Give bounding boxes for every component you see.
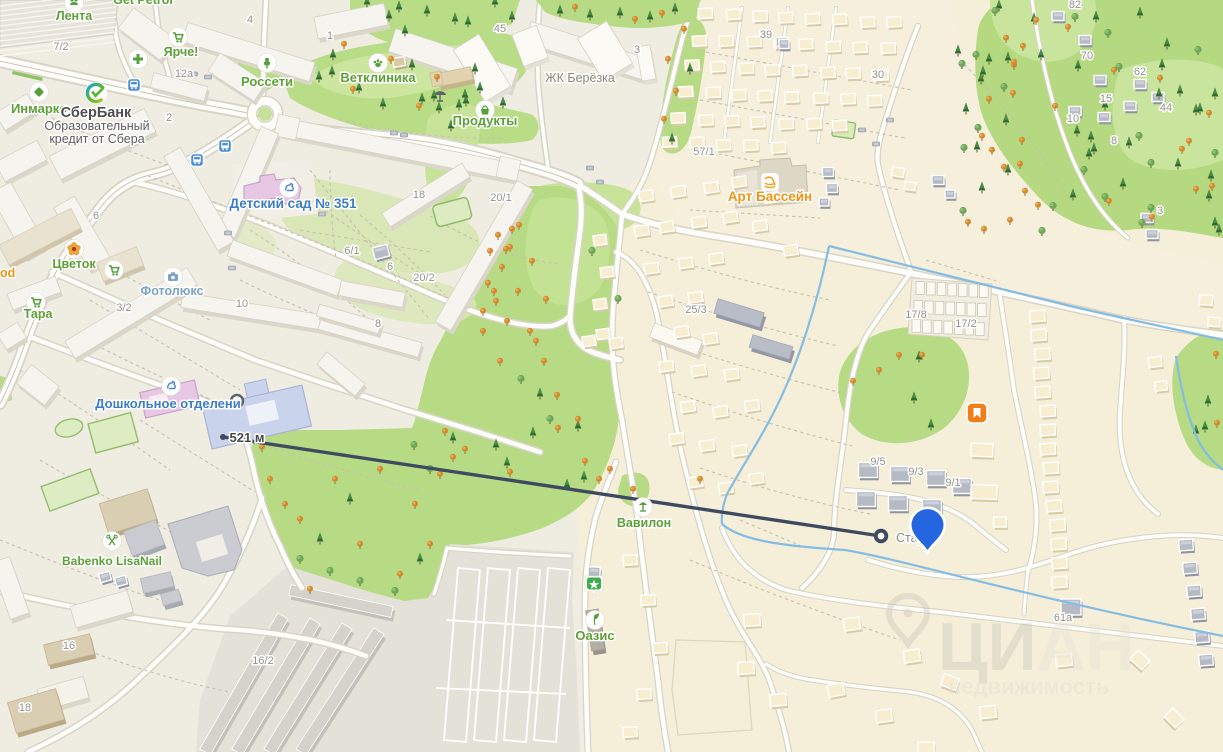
svg-text:Babenko LisaNail: Babenko LisaNail [62, 554, 162, 568]
svg-text:9/3: 9/3 [908, 466, 923, 478]
svg-text:6: 6 [387, 261, 393, 273]
svg-text:3: 3 [634, 44, 640, 56]
svg-text:16/2: 16/2 [252, 655, 273, 667]
svg-text:Россети: Россети [241, 74, 293, 89]
svg-text:12a: 12a [175, 68, 194, 80]
svg-text:Детский сад № 351: Детский сад № 351 [230, 196, 357, 211]
svg-text:20/1: 20/1 [490, 192, 511, 204]
svg-text:7/2: 7/2 [53, 41, 68, 53]
svg-text:4: 4 [247, 14, 253, 26]
svg-text:20/2: 20/2 [413, 272, 434, 284]
svg-text:Дошкольное отделени: Дошкольное отделени [95, 396, 241, 411]
svg-text:Оазис: Оазис [575, 628, 614, 643]
svg-text:15: 15 [1100, 93, 1112, 105]
svg-text:ЖК Берёзка: ЖК Берёзка [545, 71, 615, 85]
svg-text:Инмарко: Инмарко [11, 101, 67, 116]
svg-text:Арт Бассейн: Арт Бассейн [728, 189, 812, 204]
svg-text:17/8: 17/8 [905, 309, 926, 321]
svg-text:6/1: 6/1 [344, 245, 359, 257]
svg-text:8: 8 [1111, 135, 1117, 147]
svg-text:Фотолюкс: Фотолюкс [141, 284, 204, 298]
svg-text:82: 82 [1069, 0, 1081, 11]
svg-text:8: 8 [375, 318, 381, 330]
svg-text:Тара: Тара [24, 307, 54, 321]
svg-text:30: 30 [872, 69, 884, 81]
svg-text:Лента: Лента [56, 9, 93, 23]
svg-text:Get Petrol: Get Petrol [113, 0, 173, 7]
svg-text:39: 39 [760, 29, 772, 41]
svg-text:3: 3 [1157, 205, 1163, 217]
svg-text:10: 10 [236, 298, 248, 310]
svg-text:18: 18 [19, 702, 31, 714]
svg-text:Продукты: Продукты [453, 113, 518, 128]
svg-text:Вавилон: Вавилон [617, 516, 671, 530]
svg-text:кредит от Сбера: кредит от Сбера [49, 132, 144, 146]
svg-text:45: 45 [494, 23, 506, 35]
svg-text:Food: Food [0, 266, 15, 280]
svg-text:Ветклиника: Ветклиника [340, 70, 416, 85]
svg-text:2: 2 [166, 112, 172, 124]
svg-text:Образовательный: Образовательный [44, 119, 149, 133]
svg-text:9/5: 9/5 [870, 456, 885, 468]
svg-text:57/1: 57/1 [693, 146, 714, 158]
svg-text:недвижимость: недвижимость [948, 674, 1109, 699]
svg-text:521 м: 521 м [230, 430, 265, 445]
svg-text:Ярче!: Ярче! [164, 45, 199, 59]
svg-text:3/2: 3/2 [116, 302, 131, 314]
svg-text:6: 6 [93, 210, 99, 222]
svg-text:62: 62 [1134, 66, 1146, 78]
svg-text:25/3: 25/3 [685, 304, 706, 316]
svg-text:18: 18 [413, 189, 425, 201]
svg-text:16: 16 [63, 640, 75, 652]
svg-text:10: 10 [1067, 113, 1079, 125]
svg-text:70: 70 [1081, 50, 1093, 62]
svg-text:17/2: 17/2 [955, 318, 976, 330]
svg-text:Цветок: Цветок [52, 257, 96, 271]
svg-text:1: 1 [327, 30, 333, 42]
svg-text:44: 44 [1160, 102, 1172, 114]
svg-text:9/1: 9/1 [945, 477, 960, 489]
